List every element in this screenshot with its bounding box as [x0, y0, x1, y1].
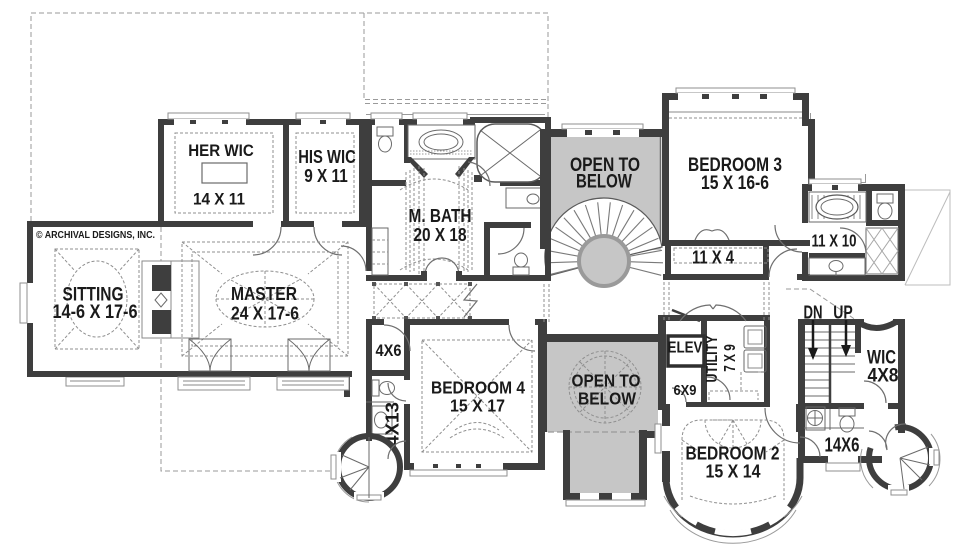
svg-text:BELOW: BELOW — [576, 171, 632, 193]
svg-text:MASTER: MASTER — [231, 284, 297, 304]
svg-text:15 X 17: 15 X 17 — [450, 396, 505, 416]
svg-text:OPEN TO: OPEN TO — [572, 371, 641, 391]
svg-text:M. BATH: M. BATH — [409, 206, 472, 226]
svg-text:ELEV: ELEV — [668, 340, 704, 357]
svg-text:BEDROOM 2: BEDROOM 2 — [686, 444, 780, 464]
svg-text:14-6 X 17-6: 14-6 X 17-6 — [53, 301, 138, 323]
svg-text:14 X 11: 14 X 11 — [193, 191, 245, 209]
svg-text:BELOW: BELOW — [578, 389, 636, 409]
svg-text:11 X 10: 11 X 10 — [812, 231, 857, 251]
svg-text:4X8: 4X8 — [868, 366, 899, 387]
svg-text:DN: DN — [804, 303, 823, 323]
svg-text:7 X 9: 7 X 9 — [722, 344, 739, 372]
svg-text:© ARCHIVAL DESIGNS, INC.: © ARCHIVAL DESIGNS, INC. — [36, 230, 155, 241]
svg-text:20 X 18: 20 X 18 — [414, 225, 467, 245]
svg-text:14X6: 14X6 — [825, 435, 860, 457]
svg-text:BEDROOM 4: BEDROOM 4 — [431, 378, 525, 398]
svg-text:24 X 17-6: 24 X 17-6 — [231, 304, 299, 324]
svg-text:UTILITY: UTILITY — [704, 335, 721, 383]
svg-text:HIS WIC: HIS WIC — [298, 146, 356, 167]
svg-text:9 X 11: 9 X 11 — [304, 165, 348, 186]
svg-text:4X6: 4X6 — [376, 341, 402, 360]
svg-text:11 X 4: 11 X 4 — [692, 248, 734, 268]
svg-text:6X9: 6X9 — [674, 382, 697, 399]
svg-text:15 X 16-6: 15 X 16-6 — [701, 173, 769, 194]
svg-text:HER WIC: HER WIC — [188, 142, 254, 160]
svg-text:UP: UP — [833, 303, 853, 323]
svg-text:15 X 14: 15 X 14 — [706, 462, 761, 482]
